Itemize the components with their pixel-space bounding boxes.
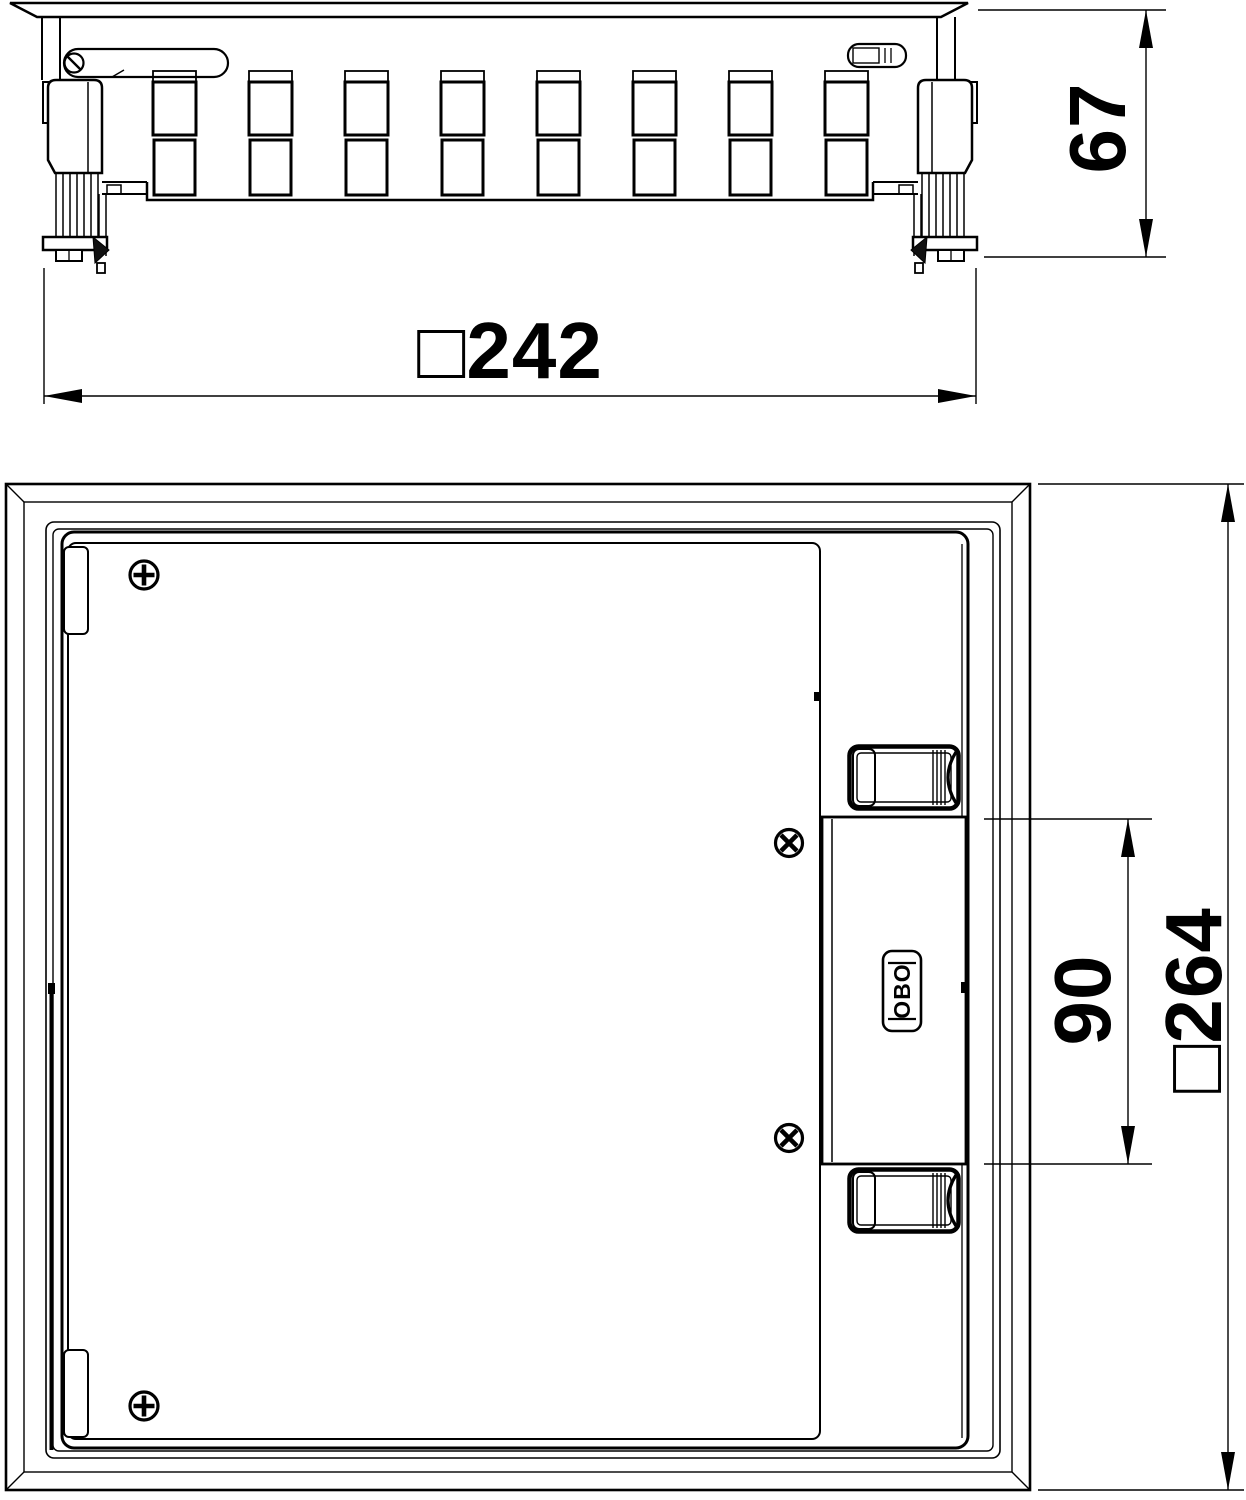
side-view: □242 67 xyxy=(10,3,1166,404)
dimension-width-242: □242 xyxy=(44,268,976,404)
hinge-tab-bottom xyxy=(64,1350,88,1437)
slot-column xyxy=(441,71,484,195)
arrowhead-left-icon xyxy=(44,389,82,403)
notch-mark xyxy=(961,982,968,993)
arrowhead-up-icon xyxy=(1121,819,1135,857)
arrowhead-down-icon xyxy=(1121,1126,1135,1164)
latch-upper xyxy=(850,747,959,809)
slot-column xyxy=(537,71,580,195)
dimension-width-label: □242 xyxy=(417,306,603,395)
mounting-flange xyxy=(10,3,968,17)
slot-column xyxy=(729,71,772,195)
arrowhead-down-icon xyxy=(1139,219,1153,257)
slot-column xyxy=(633,71,676,195)
obo-logo-text: OBO xyxy=(889,963,915,1018)
slot-column xyxy=(249,71,292,195)
arrowhead-down-icon xyxy=(1221,1452,1235,1490)
body-bottom-outline xyxy=(147,182,873,200)
obo-logo: OBO xyxy=(883,951,921,1031)
slot-column xyxy=(345,71,388,195)
hinge-tab-top xyxy=(64,547,88,634)
mounting-clip-left xyxy=(43,80,147,273)
notch-mark xyxy=(814,692,821,701)
technical-drawing-page: □242 67 xyxy=(0,0,1246,1500)
technical-drawing: □242 67 xyxy=(0,0,1246,1500)
arrowhead-up-icon xyxy=(1221,484,1235,522)
insert-screw-top-icon xyxy=(776,830,803,857)
ventilation-slots xyxy=(153,71,868,195)
slot-column xyxy=(825,71,868,195)
arrowhead-right-icon xyxy=(938,389,976,403)
notch-mark xyxy=(48,983,55,994)
mounting-clip-right xyxy=(873,80,977,273)
insert-screw-bottom-icon xyxy=(776,1125,803,1152)
slot-column xyxy=(153,71,196,195)
plan-view: OBO 90 □264 xyxy=(6,484,1244,1490)
lid-screw-bottom-icon xyxy=(130,1392,158,1420)
adjustment-lever-right xyxy=(848,44,906,67)
dimension-insert-label: 90 xyxy=(1038,955,1127,1046)
dimension-outer-label: □264 xyxy=(1149,907,1238,1093)
arrowhead-up-icon xyxy=(1139,10,1153,48)
latch-lower xyxy=(850,1170,959,1232)
lid-screw-top-icon xyxy=(130,561,158,589)
dimension-height-67: 67 xyxy=(978,10,1166,257)
adjustment-lever-left xyxy=(64,49,228,77)
dimension-height-label: 67 xyxy=(1053,83,1142,174)
